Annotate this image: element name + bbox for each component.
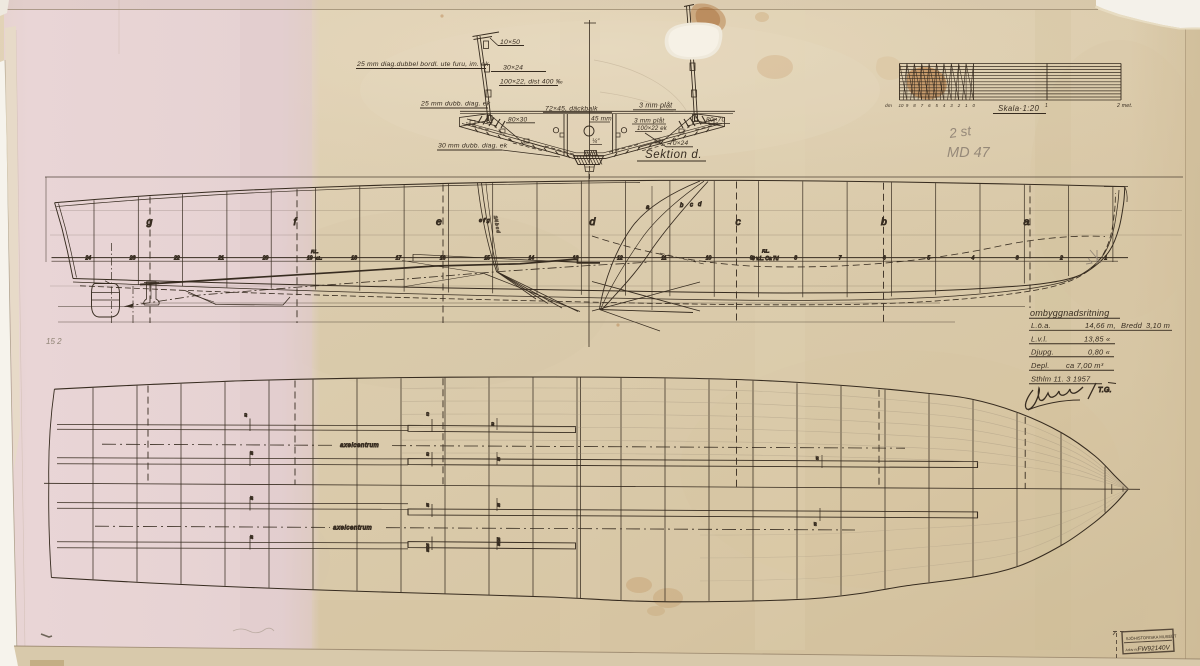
- svg-text:Djupg.: Djupg.: [1031, 348, 1054, 357]
- svg-text:g: g: [147, 216, 153, 228]
- svg-text:11: 11: [661, 256, 666, 262]
- svg-text:Sthlm 11. 3 1957: Sthlm 11. 3 1957: [1031, 375, 1091, 384]
- svg-text:ombyggnadsritning: ombyggnadsritning: [1030, 308, 1109, 318]
- svg-text:21: 21: [217, 256, 224, 262]
- svg-text:7: 7: [839, 256, 842, 262]
- svg-text:10: 10: [899, 103, 904, 108]
- svg-text:15: 15: [484, 256, 490, 262]
- svg-text:20: 20: [262, 256, 269, 262]
- svg-text:35/25: 35/25: [426, 543, 430, 552]
- svg-text:dm: dm: [885, 103, 892, 109]
- svg-text:12: 12: [617, 256, 623, 262]
- svg-text:c: c: [690, 203, 693, 209]
- svg-text:35: 35: [250, 535, 254, 539]
- svg-text:10×50: 10×50: [500, 39, 520, 46]
- svg-text:F.L.: F.L.: [762, 249, 770, 255]
- svg-text:2 met.: 2 met.: [1116, 103, 1133, 109]
- svg-text:c: c: [736, 216, 742, 228]
- svg-text:13,85 «: 13,85 «: [1084, 335, 1111, 344]
- svg-text:23: 23: [129, 256, 136, 262]
- svg-text:35: 35: [497, 457, 501, 461]
- svg-text:30 mm dubb. diag. ek: 30 mm dubb. diag. ek: [438, 143, 508, 150]
- svg-text:4: 4: [972, 256, 975, 262]
- svg-text:T.G.: T.G.: [1098, 387, 1112, 394]
- svg-text:1: 1: [1104, 256, 1107, 262]
- svg-text:80×70: 80×70: [706, 117, 725, 124]
- svg-text:14: 14: [529, 256, 535, 262]
- svg-text:17: 17: [396, 256, 402, 262]
- svg-text:v.L.: v.L.: [315, 256, 322, 262]
- svg-text:e: e: [436, 216, 442, 228]
- svg-text:30: 30: [244, 413, 248, 417]
- svg-text:ca 7,00 m³: ca 7,00 m³: [1066, 361, 1104, 370]
- svg-text:10: 10: [706, 256, 712, 262]
- svg-text:70×24: 70×24: [669, 140, 688, 147]
- svg-text:35: 35: [250, 451, 254, 455]
- svg-text:30: 30: [491, 422, 495, 426]
- svg-text:3,10 m: 3,10 m: [1146, 321, 1170, 330]
- svg-text:45 mm: 45 mm: [591, 116, 612, 123]
- svg-text:8: 8: [794, 256, 797, 262]
- svg-text:MD 47: MD 47: [947, 145, 991, 161]
- svg-text:15 2: 15 2: [46, 337, 62, 346]
- svg-text:25 mm dubb. diag. ek: 25 mm dubb. diag. ek: [420, 101, 491, 108]
- svg-text:22: 22: [173, 256, 180, 262]
- svg-text:35: 35: [497, 503, 501, 507]
- svg-text:L.ö.a.: L.ö.a.: [1031, 321, 1051, 330]
- svg-text:¼″: ¼″: [592, 139, 600, 145]
- svg-text:Sektion d.: Sektion d.: [645, 149, 702, 161]
- svg-text:3 mm plåt: 3 mm plåt: [639, 101, 673, 110]
- svg-text:L.v.l.: L.v.l.: [1031, 335, 1047, 344]
- svg-text:a: a: [1024, 216, 1030, 228]
- svg-text:F.L.: F.L.: [311, 249, 319, 255]
- svg-text:24: 24: [85, 256, 92, 262]
- svg-text:3: 3: [1016, 256, 1019, 262]
- svg-text:2: 2: [957, 103, 961, 108]
- svg-text:b: b: [881, 216, 887, 228]
- svg-text:Skala·1:20: Skala·1:20: [998, 104, 1040, 113]
- svg-text:100×22, dist 400 ‰: 100×22, dist 400 ‰: [500, 79, 563, 86]
- svg-text:3 mm plåt: 3 mm plåt: [634, 117, 665, 125]
- svg-text:1: 1: [1045, 103, 1048, 109]
- svg-text:axelcentrum: axelcentrum: [333, 525, 372, 532]
- svg-text:35: 35: [250, 496, 254, 500]
- svg-text:50: 50: [426, 452, 430, 456]
- svg-text:100×22 ek: 100×22 ek: [637, 126, 668, 132]
- svg-text:2: 2: [1059, 256, 1063, 262]
- svg-text:Bredd: Bredd: [1121, 321, 1143, 330]
- svg-text:19: 19: [307, 256, 313, 262]
- svg-text:30×24: 30×24: [503, 65, 523, 72]
- svg-text:e f g: e f g: [479, 218, 491, 224]
- svg-text:25 mm diag.dubbel bordl. ute f: 25 mm diag.dubbel bordl. ute furu, im. e…: [356, 61, 489, 68]
- svg-text:axelcentrum: axelcentrum: [340, 442, 379, 449]
- svg-text:Depl.: Depl.: [1031, 361, 1050, 370]
- svg-text:9 v.L. Ca 7d: 9 v.L. Ca 7d: [752, 256, 779, 262]
- svg-text:14,66 m,: 14,66 m,: [1085, 321, 1116, 330]
- svg-text:0,80 «: 0,80 «: [1088, 348, 1111, 357]
- svg-text:35: 35: [814, 522, 818, 526]
- svg-text:72×45, däckbalk: 72×45, däckbalk: [545, 106, 598, 113]
- svg-text:35/25: 35/25: [497, 537, 501, 546]
- svg-text:35: 35: [426, 503, 430, 507]
- svg-text:18: 18: [351, 256, 357, 262]
